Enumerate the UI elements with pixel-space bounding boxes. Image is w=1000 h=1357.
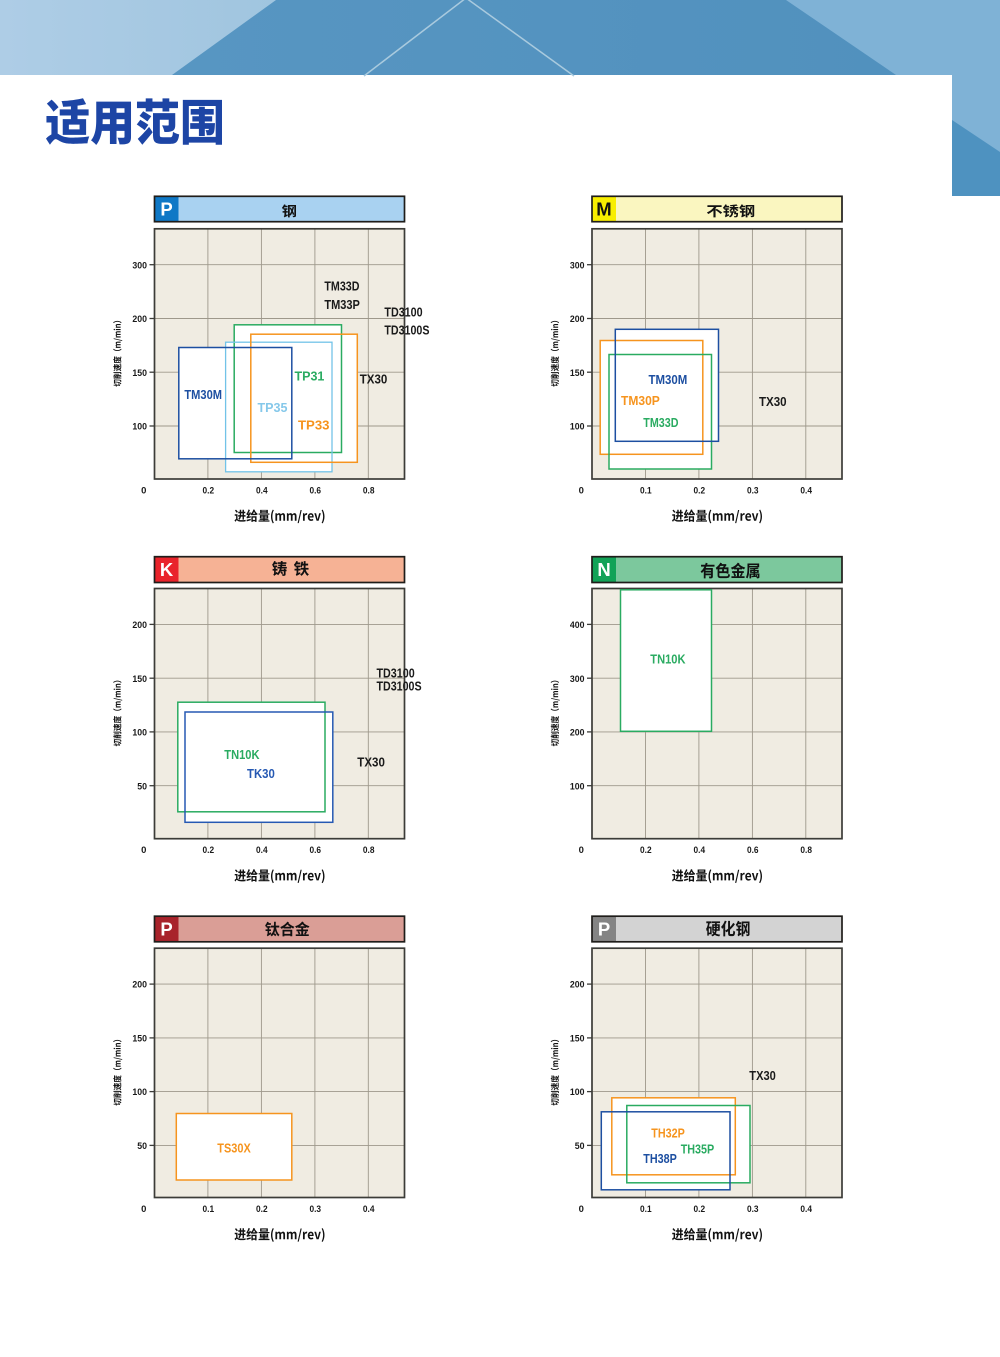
- svg-text:0.8: 0.8: [363, 845, 375, 856]
- svg-text:100: 100: [132, 728, 147, 739]
- svg-text:200: 200: [132, 314, 147, 325]
- svg-text:TN10K: TN10K: [224, 748, 259, 762]
- svg-text:50: 50: [137, 781, 147, 792]
- svg-text:0: 0: [579, 485, 584, 496]
- svg-text:150: 150: [570, 1033, 585, 1044]
- svg-text:0.2: 0.2: [203, 845, 215, 856]
- svg-text:0.4: 0.4: [256, 485, 268, 496]
- svg-text:TN10K: TN10K: [650, 652, 685, 666]
- svg-text:300: 300: [570, 260, 585, 271]
- svg-text:300: 300: [570, 674, 585, 685]
- svg-text:0.6: 0.6: [309, 485, 321, 496]
- svg-text:0.2: 0.2: [203, 485, 215, 496]
- svg-text:TM33D: TM33D: [643, 416, 678, 430]
- svg-text:50: 50: [575, 1141, 585, 1152]
- svg-text:0.3: 0.3: [747, 485, 759, 496]
- svg-text:0: 0: [579, 1204, 584, 1215]
- svg-text:N: N: [597, 559, 610, 580]
- svg-text:0.6: 0.6: [309, 845, 321, 856]
- svg-text:300: 300: [132, 260, 147, 271]
- svg-text:0.2: 0.2: [694, 1204, 706, 1215]
- svg-text:0.1: 0.1: [640, 1204, 652, 1215]
- svg-text:TX30: TX30: [360, 372, 388, 387]
- svg-text:50: 50: [137, 1141, 147, 1152]
- svg-text:0.6: 0.6: [747, 845, 759, 856]
- svg-text:TX30: TX30: [759, 394, 787, 409]
- svg-text:M: M: [596, 199, 611, 220]
- svg-text:200: 200: [132, 620, 147, 631]
- svg-text:TP35: TP35: [258, 401, 288, 415]
- svg-text:0: 0: [579, 845, 584, 856]
- svg-text:0.4: 0.4: [694, 845, 706, 856]
- svg-text:200: 200: [570, 728, 585, 739]
- svg-text:TM30M: TM30M: [649, 373, 688, 387]
- svg-text:K: K: [160, 559, 174, 580]
- svg-text:TP33: TP33: [298, 418, 330, 432]
- svg-text:100: 100: [570, 1087, 585, 1098]
- svg-text:100: 100: [570, 422, 585, 433]
- svg-text:0.4: 0.4: [363, 1204, 375, 1215]
- svg-text:100: 100: [132, 422, 147, 433]
- svg-text:TM33D: TM33D: [324, 279, 359, 294]
- svg-text:TM30P: TM30P: [621, 394, 660, 408]
- svg-text:0.1: 0.1: [640, 485, 652, 496]
- svg-text:TD3100S: TD3100S: [384, 322, 429, 337]
- svg-text:0.4: 0.4: [256, 845, 268, 856]
- svg-text:0: 0: [141, 845, 146, 856]
- svg-text:0.4: 0.4: [800, 1204, 812, 1215]
- svg-text:TH32P: TH32P: [651, 1127, 685, 1141]
- svg-text:P: P: [160, 919, 172, 940]
- svg-text:150: 150: [570, 368, 585, 379]
- svg-text:0.1: 0.1: [203, 1204, 215, 1215]
- svg-text:0.2: 0.2: [640, 845, 652, 856]
- svg-text:0: 0: [141, 1204, 146, 1215]
- svg-text:0: 0: [141, 485, 146, 496]
- svg-text:TH35P: TH35P: [681, 1142, 715, 1156]
- svg-text:400: 400: [570, 620, 585, 631]
- svg-text:TM33P: TM33P: [324, 297, 360, 312]
- svg-text:TK30: TK30: [247, 767, 275, 781]
- svg-text:TM30M: TM30M: [184, 388, 222, 402]
- svg-text:100: 100: [570, 781, 585, 792]
- svg-text:TP31: TP31: [295, 369, 325, 383]
- svg-text:TD3100S: TD3100S: [377, 678, 422, 693]
- svg-text:P: P: [598, 919, 610, 940]
- svg-text:0.2: 0.2: [694, 485, 706, 496]
- svg-text:150: 150: [132, 674, 147, 685]
- svg-text:0.8: 0.8: [363, 485, 375, 496]
- svg-text:TD3100: TD3100: [384, 304, 422, 319]
- svg-text:TX30: TX30: [749, 1068, 776, 1083]
- svg-text:150: 150: [132, 368, 147, 379]
- svg-text:0.2: 0.2: [256, 1204, 268, 1215]
- svg-text:TS30X: TS30X: [217, 1141, 251, 1155]
- svg-text:0.4: 0.4: [800, 485, 812, 496]
- svg-text:200: 200: [570, 980, 585, 991]
- svg-text:200: 200: [570, 314, 585, 325]
- svg-text:200: 200: [132, 980, 147, 991]
- svg-text:150: 150: [132, 1033, 147, 1044]
- svg-text:0.3: 0.3: [747, 1204, 759, 1215]
- svg-text:0.8: 0.8: [800, 845, 812, 856]
- svg-text:TX30: TX30: [357, 755, 385, 770]
- svg-text:TH38P: TH38P: [643, 1152, 677, 1166]
- svg-text:0.3: 0.3: [309, 1204, 321, 1215]
- svg-text:100: 100: [132, 1087, 147, 1098]
- svg-text:P: P: [160, 199, 172, 220]
